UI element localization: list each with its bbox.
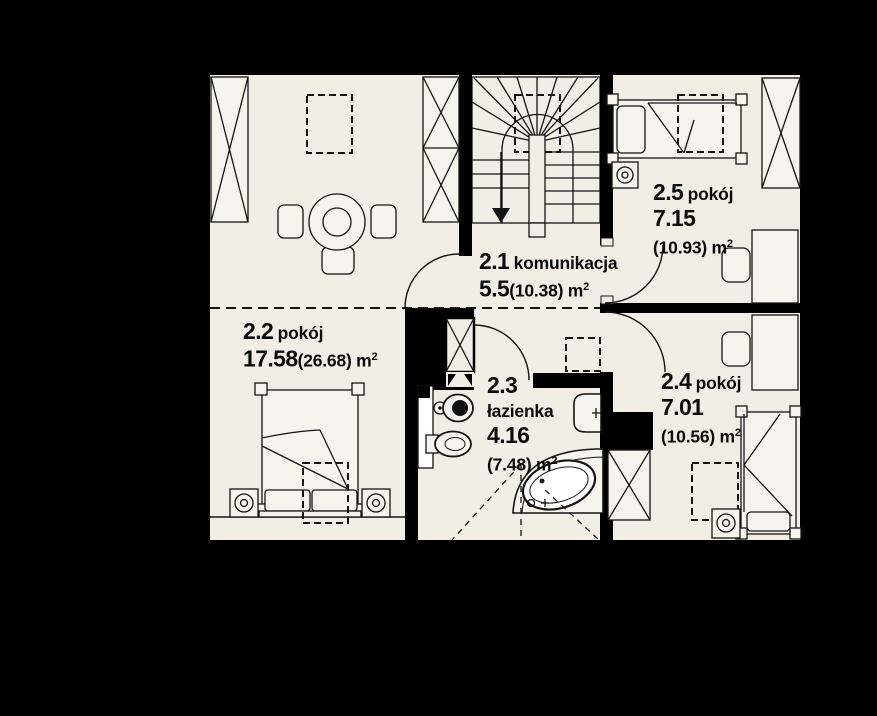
pillow [617, 106, 645, 153]
room-number: 2.2 [243, 318, 273, 344]
room-label-2-3: 2.3 łazienka 4.16 (7.48) m2 [487, 374, 557, 477]
room-area-net: 7.15 [653, 205, 695, 231]
shaft-x-icon [446, 318, 474, 372]
room-name: pokój [688, 184, 734, 204]
wardrobe-x-icon [608, 450, 650, 520]
floor-plan-drawing [0, 0, 877, 716]
plumbing-partition [418, 386, 433, 468]
room-number: 2.5 [653, 179, 683, 205]
wall-a [459, 75, 472, 256]
floor-plan-page: 2.1 komunikacja 5.5(10.38) m2 2.2 pokój … [0, 0, 877, 716]
nightstand-lamp-icon [362, 489, 390, 517]
room-name: komunikacja [514, 253, 618, 273]
chair-icon [371, 205, 396, 238]
room-area-sup: 2 [735, 427, 741, 439]
wall-between-2-5-and-2-4 [613, 303, 800, 313]
room-area-net: 17.58 [243, 345, 298, 371]
room-number: 2.1 [479, 248, 509, 274]
chair-icon [278, 205, 303, 238]
room-area-net: 4.16 [487, 422, 529, 448]
chimney-block [613, 412, 653, 450]
stair-spine-end [529, 223, 545, 237]
room-area-sup: 2 [551, 455, 557, 467]
room-area-net: 7.01 [661, 394, 703, 420]
room-label-2-1: 2.1 komunikacja 5.5(10.38) m2 [479, 250, 617, 303]
room-area-unit: m [568, 280, 583, 300]
room-label-2-5: 2.5 pokój 7.15 (10.93) m2 [653, 181, 733, 260]
room-number: 2.3 [487, 372, 517, 398]
chair-icon [722, 332, 750, 366]
chair-icon [322, 247, 354, 274]
bidet-icon [426, 432, 471, 457]
washbasin-icon [574, 394, 601, 432]
room-name: pokój [696, 373, 742, 393]
room-name: pokój [278, 323, 324, 343]
room-number: 2.4 [661, 368, 691, 394]
nightstand-lamp-icon [712, 509, 740, 538]
room-area-gross: (26.68) [298, 350, 352, 370]
room-area-unit: m [356, 350, 371, 370]
wardrobe-x-icon [423, 77, 459, 222]
plumbing-duct [418, 386, 430, 398]
stair-spine [529, 135, 545, 223]
desk-icon [752, 230, 798, 303]
wall-b [405, 390, 418, 540]
single-bed-icon [736, 406, 801, 539]
room-area-sup: 2 [583, 281, 589, 293]
nightstand-lamp-icon [612, 162, 638, 188]
room-area-net: 5.5 [479, 275, 509, 301]
room-area-unit: m [712, 237, 727, 257]
room-area-sup: 2 [727, 238, 733, 250]
pillow [312, 490, 357, 511]
wardrobe-x-icon [762, 78, 800, 188]
bathroom-door-frame [446, 372, 474, 387]
room-area-gross: (7.48) [487, 454, 532, 474]
room-area-unit: m [536, 454, 551, 474]
room-area-unit: m [720, 426, 735, 446]
room-area-gross: (10.38) [509, 280, 563, 300]
room-area-gross: (10.93) [653, 237, 707, 257]
door-jamb [601, 238, 613, 246]
nightstand-lamp-icon [230, 489, 258, 517]
wall-bath-north-west [418, 373, 446, 387]
room-area-gross: (10.56) [661, 426, 715, 446]
desk-icon [752, 315, 798, 390]
pillow [747, 512, 790, 531]
wardrobe-x-icon [211, 77, 248, 222]
room-area-sup: 2 [371, 351, 377, 363]
room-name: łazienka [487, 401, 554, 421]
room-label-2-2: 2.2 pokój 17.58(26.68) m2 [243, 320, 378, 373]
room-label-2-4: 2.4 pokój 7.01 (10.56) m2 [661, 370, 741, 449]
